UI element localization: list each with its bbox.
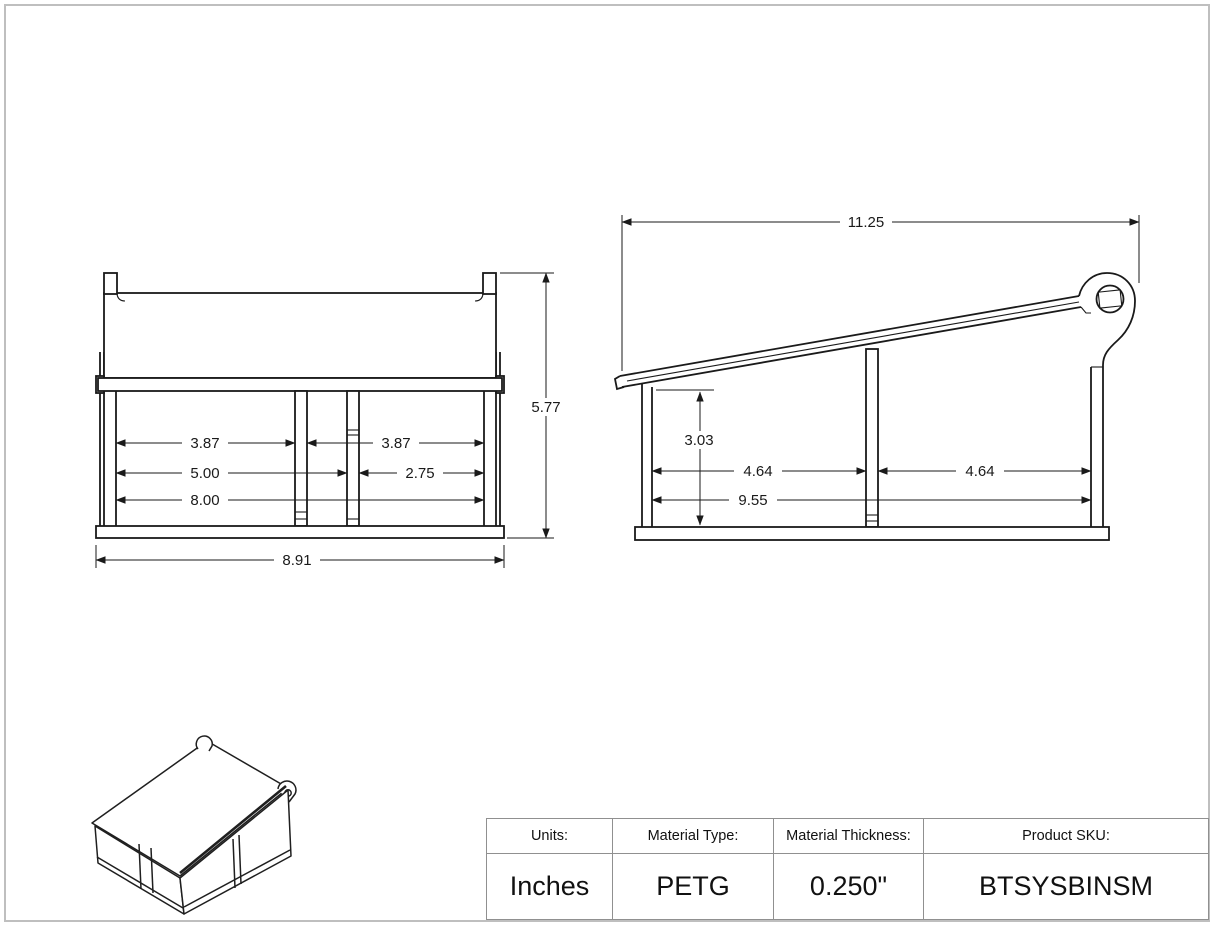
dim-overall-width: 8.91 [282, 552, 311, 569]
front-tab-left [104, 273, 117, 294]
material-type-header: Material Type: [613, 819, 774, 854]
side-base [635, 527, 1109, 540]
drawing-canvas: 3.87 3.87 5.00 2.75 8.00 8.91 [0, 0, 1214, 926]
hanger-square [1098, 290, 1122, 308]
drawing-sheet: 3.87 3.87 5.00 2.75 8.00 8.91 [0, 0, 1214, 926]
iso-tab-back [196, 736, 212, 751]
front-divider-1 [295, 391, 307, 526]
dim-divider2-to-wall: 2.75 [405, 465, 434, 482]
front-tab-right [483, 273, 496, 294]
dim-bay-near-length: 4.64 [743, 463, 772, 480]
material-thickness-value: 0.250" [774, 854, 924, 920]
dim-inner-width: 8.00 [190, 492, 219, 509]
dim-inner-length: 9.55 [738, 492, 767, 509]
product-sku-value: BTSYSBINSM [924, 854, 1209, 920]
isometric-view [92, 736, 296, 914]
front-lid [104, 293, 496, 378]
dim-inner-height: 3.03 [684, 432, 713, 449]
dim-bay-far-length: 4.64 [965, 463, 994, 480]
side-view-dimensions: 11.25 3.03 4.64 4.64 9.55 [622, 213, 1139, 525]
product-sku-header: Product SKU: [924, 819, 1209, 854]
front-view: 3.87 3.87 5.00 2.75 8.00 8.91 [96, 273, 571, 569]
dim-wall-to-divider2: 5.00 [190, 465, 219, 482]
dim-overall-length: 11.25 [848, 214, 884, 231]
units-header: Units: [487, 819, 613, 854]
side-lid-top [620, 296, 1079, 376]
side-hook [1079, 273, 1135, 527]
front-lip [98, 378, 502, 391]
dim-bay-left-width: 3.87 [190, 435, 219, 452]
front-base [96, 526, 504, 538]
front-divider-2 [347, 391, 359, 526]
units-value: Inches [487, 854, 613, 920]
dim-overall-height: 5.77 [531, 399, 560, 416]
title-block: Units: Material Type: Material Thickness… [486, 818, 1209, 920]
side-view: 11.25 3.03 4.64 4.64 9.55 [615, 213, 1139, 540]
dim-bay-right-width: 3.87 [381, 435, 410, 452]
material-thickness-header: Material Thickness: [774, 819, 924, 854]
material-type-value: PETG [613, 854, 774, 920]
